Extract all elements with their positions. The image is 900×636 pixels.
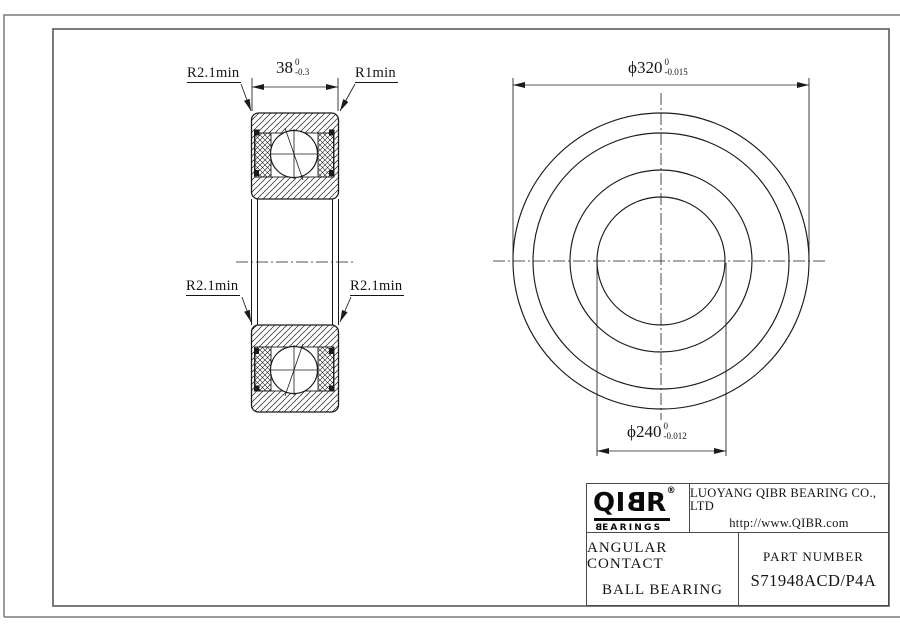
mirrored-b: B — [626, 490, 646, 516]
dim-width-tolerance: 0 -0.3 — [295, 58, 309, 77]
part-number-cell: PART NUMBER S71948ACD/P4A — [739, 533, 888, 605]
upper-section — [252, 113, 339, 199]
title-block-top-row: QIBR® BEARINGS LUOYANG QIBR BEARING CO.,… — [587, 484, 888, 533]
part-number-label: PART NUMBER — [763, 550, 864, 564]
lower-section — [252, 325, 339, 412]
dim-od-value: ϕ320 — [628, 58, 662, 77]
label-r2-1min-mid-left: R2.1min — [186, 278, 240, 296]
title-block: QIBR® BEARINGS LUOYANG QIBR BEARING CO.,… — [586, 483, 889, 606]
logo-cell: QIBR® BEARINGS — [587, 484, 690, 532]
company-website: http://www.QIBR.com — [729, 517, 848, 530]
front-view — [493, 78, 828, 456]
qibr-logo: QIBR® — [593, 487, 689, 516]
logo-bearings-text: BEARINGS — [593, 523, 689, 533]
dim-bore-text: ϕ240 0 -0.012 — [627, 422, 687, 441]
product-line1: ANGULAR CONTACT — [587, 540, 738, 572]
dim-bore-value: ϕ240 — [627, 422, 661, 441]
dim-od-tolerance: 0 -0.015 — [664, 58, 687, 77]
company-cell: LUOYANG QIBR BEARING CO., LTD http://www… — [690, 484, 888, 532]
dim-od-text: ϕ320 0 -0.015 — [628, 58, 688, 77]
product-line2: BALL BEARING — [602, 582, 723, 598]
dim-bore-tolerance: 0 -0.012 — [663, 422, 686, 441]
label-r2-1min-top-left: R2.1min — [187, 65, 241, 83]
product-type-cell: ANGULAR CONTACT BALL BEARING — [587, 533, 739, 605]
registered-mark: ® — [667, 486, 676, 496]
dim-width-value: 38 — [276, 58, 293, 77]
dim-width-lines — [252, 78, 338, 111]
cross-section-view — [236, 78, 355, 412]
label-r1min-top-right: R1min — [355, 65, 398, 83]
title-block-bottom-row: ANGULAR CONTACT BALL BEARING PART NUMBER… — [587, 533, 888, 605]
company-name: LUOYANG QIBR BEARING CO., LTD — [690, 487, 888, 513]
label-r2-1min-mid-right: R2.1min — [350, 278, 404, 296]
logo-divider-bar — [594, 518, 670, 521]
part-number-value: S71948ACD/P4A — [751, 572, 877, 589]
dim-width-text: 38 0 -0.3 — [276, 58, 309, 77]
